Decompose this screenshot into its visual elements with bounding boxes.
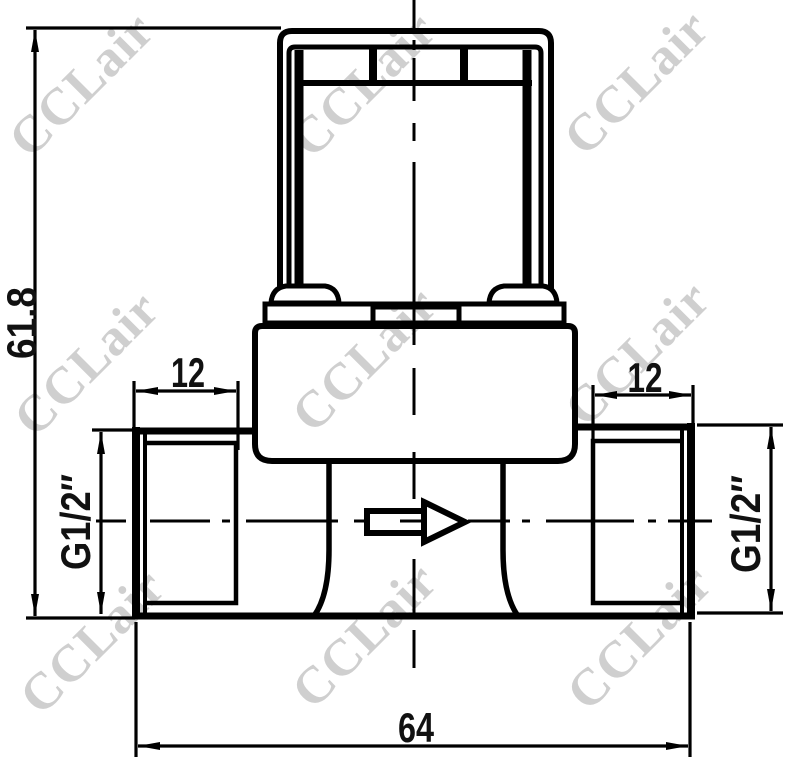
svg-text:G1/2″: G1/2″: [52, 474, 99, 570]
svg-text:61.8: 61.8: [0, 287, 45, 359]
svg-text:12: 12: [171, 349, 205, 396]
svg-text:G1/2″: G1/2″: [722, 475, 769, 573]
svg-text:64: 64: [398, 704, 434, 751]
